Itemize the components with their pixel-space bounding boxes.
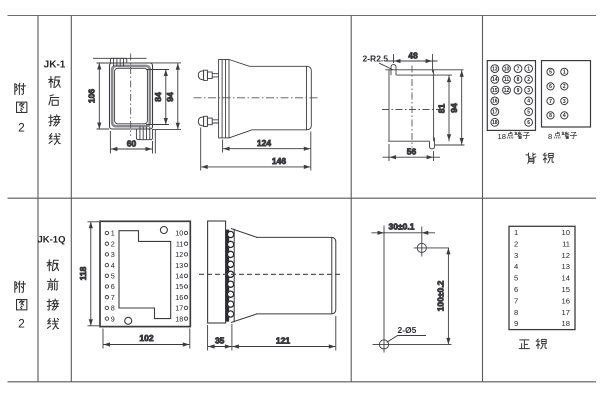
svg-text:JK-1Q: JK-1Q [38, 235, 66, 246]
svg-text:3: 3 [563, 99, 566, 105]
svg-text:14: 14 [492, 77, 498, 83]
svg-text:7: 7 [514, 296, 518, 305]
svg-text:1: 1 [563, 70, 566, 76]
svg-text:5: 5 [514, 274, 518, 283]
svg-text:8: 8 [111, 304, 115, 313]
svg-text:18: 18 [175, 314, 183, 323]
svg-text:3: 3 [514, 251, 518, 260]
svg-text:16: 16 [175, 293, 183, 302]
svg-text:14: 14 [175, 272, 183, 281]
svg-text:1: 1 [111, 229, 115, 238]
svg-text:15: 15 [562, 285, 570, 294]
svg-text:17: 17 [492, 109, 498, 115]
svg-text:7: 7 [517, 66, 520, 72]
svg-text:102: 102 [139, 333, 153, 343]
svg-text:13: 13 [492, 66, 498, 72]
svg-text:2: 2 [563, 84, 566, 90]
svg-text:9: 9 [514, 319, 518, 328]
svg-text:6: 6 [111, 282, 115, 291]
svg-text:10: 10 [562, 228, 570, 237]
svg-text:17: 17 [562, 308, 570, 317]
svg-text:16: 16 [492, 99, 498, 105]
svg-text:8: 8 [548, 132, 552, 141]
svg-text:18: 18 [562, 319, 570, 328]
svg-text:121: 121 [276, 336, 290, 346]
svg-text:118: 118 [78, 266, 88, 280]
svg-text:12: 12 [504, 88, 510, 94]
svg-text:94: 94 [449, 103, 459, 113]
svg-text:146: 146 [272, 156, 286, 166]
svg-text:3: 3 [527, 88, 530, 94]
svg-text:81: 81 [436, 104, 446, 114]
svg-text:94: 94 [165, 92, 175, 102]
svg-text:18: 18 [492, 120, 498, 126]
svg-text:12: 12 [562, 251, 570, 260]
svg-text:15: 15 [175, 282, 183, 291]
svg-text:60: 60 [127, 138, 137, 148]
svg-text:7: 7 [549, 99, 552, 105]
svg-text:2: 2 [514, 239, 518, 248]
svg-text:2: 2 [527, 77, 530, 83]
svg-text:1: 1 [514, 228, 518, 237]
svg-text:15: 15 [492, 88, 498, 94]
svg-text:13: 13 [562, 262, 570, 271]
svg-text:106: 106 [87, 89, 97, 103]
svg-text:16: 16 [562, 296, 570, 305]
svg-text:6: 6 [527, 120, 530, 126]
svg-text:35: 35 [215, 336, 225, 346]
svg-text:11: 11 [504, 77, 510, 83]
svg-text:2-R2.5: 2-R2.5 [363, 54, 389, 64]
svg-text:7: 7 [111, 293, 115, 302]
svg-text:10: 10 [175, 229, 183, 238]
svg-text:4: 4 [527, 99, 530, 105]
svg-text:84: 84 [153, 92, 163, 102]
svg-text:14: 14 [562, 274, 570, 283]
svg-text:2: 2 [111, 239, 115, 248]
svg-text:4: 4 [514, 262, 518, 271]
svg-text:10: 10 [504, 66, 510, 72]
svg-text:2: 2 [18, 317, 25, 331]
svg-text:8: 8 [549, 113, 552, 119]
svg-text:5: 5 [111, 272, 115, 281]
svg-text:48: 48 [408, 50, 418, 60]
svg-text:5: 5 [549, 70, 552, 76]
svg-text:5: 5 [527, 109, 530, 115]
svg-text:9: 9 [111, 314, 115, 323]
svg-text:2: 2 [18, 121, 25, 135]
svg-text:6: 6 [514, 285, 518, 294]
svg-text:6: 6 [549, 84, 552, 90]
svg-text:11: 11 [562, 239, 570, 248]
svg-text:1: 1 [527, 66, 530, 72]
svg-text:9: 9 [517, 88, 520, 94]
svg-text:13: 13 [175, 261, 183, 270]
svg-text:12: 12 [175, 250, 183, 259]
svg-text:8: 8 [514, 308, 518, 317]
svg-text:17: 17 [175, 304, 183, 313]
svg-text:8: 8 [517, 77, 520, 83]
svg-text:11: 11 [176, 239, 183, 248]
svg-text:JK-1: JK-1 [44, 59, 66, 70]
svg-text:124: 124 [257, 138, 271, 148]
svg-text:18: 18 [498, 132, 506, 141]
svg-text:4: 4 [563, 113, 566, 119]
svg-text:100±0.2: 100±0.2 [435, 280, 445, 311]
svg-text:2-Ø5: 2-Ø5 [398, 325, 417, 335]
svg-text:4: 4 [111, 261, 115, 270]
svg-text:30±0.1: 30±0.1 [389, 222, 415, 232]
svg-text:3: 3 [111, 250, 115, 259]
svg-text:56: 56 [407, 146, 417, 156]
